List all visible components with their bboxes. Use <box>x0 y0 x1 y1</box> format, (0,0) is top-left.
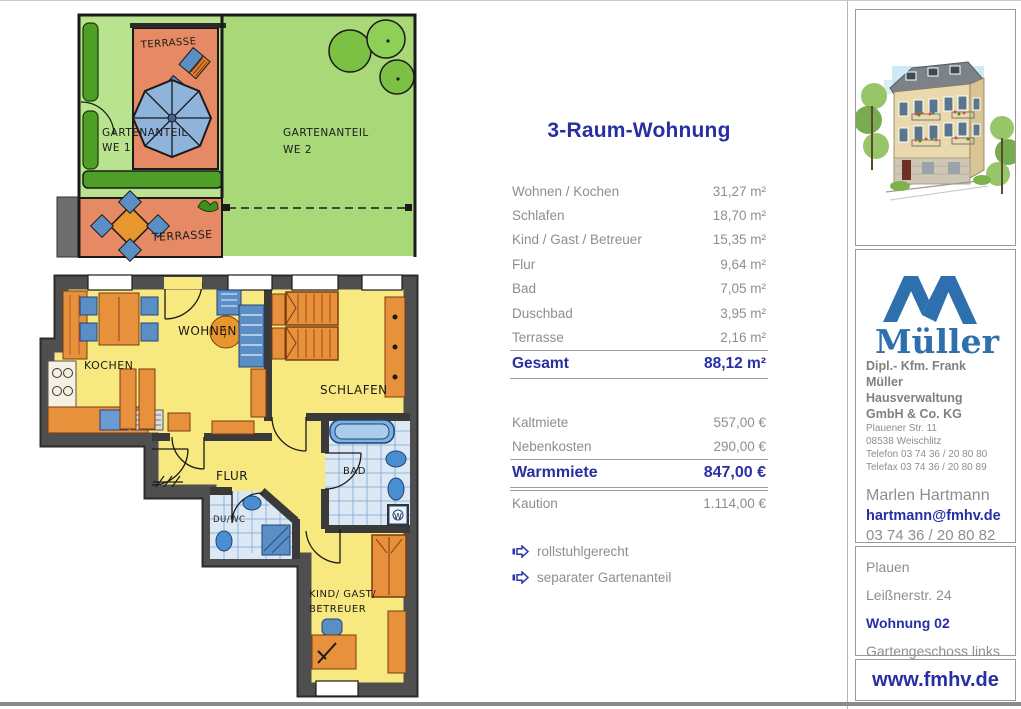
label-wohnen: WOHNEN <box>178 324 237 338</box>
table-row: Flur9,64 m² <box>510 252 768 276</box>
website-link[interactable]: www.fmhv.de <box>872 669 999 692</box>
garden-area: TERRASSE GARTENANTEIL WE 1 GARTENANTEIL … <box>57 15 415 261</box>
mueller-logo: Müller <box>861 258 1011 356</box>
company-phone: Telefon 03 74 36 / 20 80 80 <box>866 448 1005 461</box>
table-row: Kaltmiete557,00 € <box>510 410 768 434</box>
table-row: Nebenkosten290,00 € <box>510 434 768 458</box>
deposit-row: Kaution1.114,00 € <box>510 492 768 516</box>
contact-email[interactable]: hartmann@fmhv.de <box>866 506 1005 526</box>
arrow-right-icon <box>512 571 529 584</box>
company-name-line: GmbH & Co. KG <box>866 406 1005 422</box>
company-name-line: Dipl.- Kfm. Frank Müller <box>866 358 1005 390</box>
company-box: Müller Dipl.- Kfm. Frank Müller Hausverw… <box>855 249 1016 543</box>
table-row: Wohnen / Kochen31,27 m² <box>510 179 768 203</box>
label-schlafen: SCHLAFEN <box>320 383 388 397</box>
location-street: Leißnerstr. 24 <box>856 581 1015 609</box>
company-address: Plauener Str. 11 <box>866 422 1005 435</box>
company-name-line: Hausverwaltung <box>866 390 1005 406</box>
logo-text: Müller <box>875 322 1000 356</box>
label-washer: W <box>394 512 402 521</box>
company-address: 08538 Weischlitz <box>866 435 1005 448</box>
table-row: Duschbad3,95 m² <box>510 301 768 325</box>
label-duwc: DU/WC <box>213 515 245 525</box>
room-table: Wohnen / Kochen31,27 m² Schlafen18,70 m²… <box>510 179 768 379</box>
label-bad: BAD <box>343 466 366 477</box>
apartment: KOCHEN WOHNEN SCHLAFEN FLUR BAD DU/WC KI… <box>48 275 410 696</box>
contact-phone: 03 74 36 / 20 80 82 <box>866 526 1005 546</box>
label-flur: FLUR <box>216 469 248 483</box>
divider <box>510 488 768 491</box>
label-we2: WE 2 <box>283 144 312 156</box>
floor-plan: TERRASSE GARTENANTEIL WE 1 GARTENANTEIL … <box>0 1 460 709</box>
location-unit: Wohnung 02 <box>856 609 1015 637</box>
cost-table: Kaltmiete557,00 € Nebenkosten290,00 € Wa… <box>510 410 768 516</box>
company-info: Dipl.- Kfm. Frank Müller Hausverwaltung … <box>856 356 1015 474</box>
feature-item: rollstuhlgerecht <box>510 538 768 564</box>
sidebar-divider <box>847 1 848 709</box>
label-kochen: KOCHEN <box>84 359 133 372</box>
label-kind1: KIND/ GAST/ <box>309 589 376 600</box>
label-gartenanteil-we2: GARTENANTEIL <box>283 127 369 139</box>
table-row: Bad7,05 m² <box>510 277 768 301</box>
location-city: Plauen <box>856 547 1015 581</box>
expose-page: TERRASSE GARTENANTEIL WE 1 GARTENANTEIL … <box>0 0 1021 709</box>
label-we1: WE 1 <box>102 142 131 154</box>
table-row: Kind / Gast / Betreuer15,35 m² <box>510 228 768 252</box>
warm-rent-row: Warmmiete847,00 € <box>510 459 768 488</box>
building-photo-box <box>855 9 1016 246</box>
contact-block: Marlen Hartmann hartmann@fmhv.de 03 74 3… <box>856 474 1015 546</box>
total-row: Gesamt88,12 m² <box>510 350 768 379</box>
page-title: 3-Raum-Wohnung <box>510 119 768 143</box>
company-fax: Telefax 03 74 36 / 20 80 89 <box>866 461 1005 474</box>
umbrella-icon <box>133 80 211 157</box>
feature-list: rollstuhlgerecht separater Gartenanteil <box>510 538 768 590</box>
bottom-edge-bar <box>0 702 1021 706</box>
arrow-right-icon <box>512 545 529 558</box>
terrace-door-opening <box>164 277 202 289</box>
building-illustration <box>856 10 1015 245</box>
contact-name: Marlen Hartmann <box>866 486 1005 506</box>
table-row: Terrasse2,16 m² <box>510 325 768 349</box>
feature-item: separater Gartenanteil <box>510 564 768 590</box>
label-gartenanteil-we1: GARTENANTEIL <box>102 127 188 139</box>
location-box: Plauen Leißnerstr. 24 Wohnung 02 Garteng… <box>855 546 1016 656</box>
table-row: Schlafen18,70 m² <box>510 203 768 227</box>
website-box: www.fmhv.de <box>855 659 1016 701</box>
label-kind2: BETREUER <box>309 604 366 615</box>
